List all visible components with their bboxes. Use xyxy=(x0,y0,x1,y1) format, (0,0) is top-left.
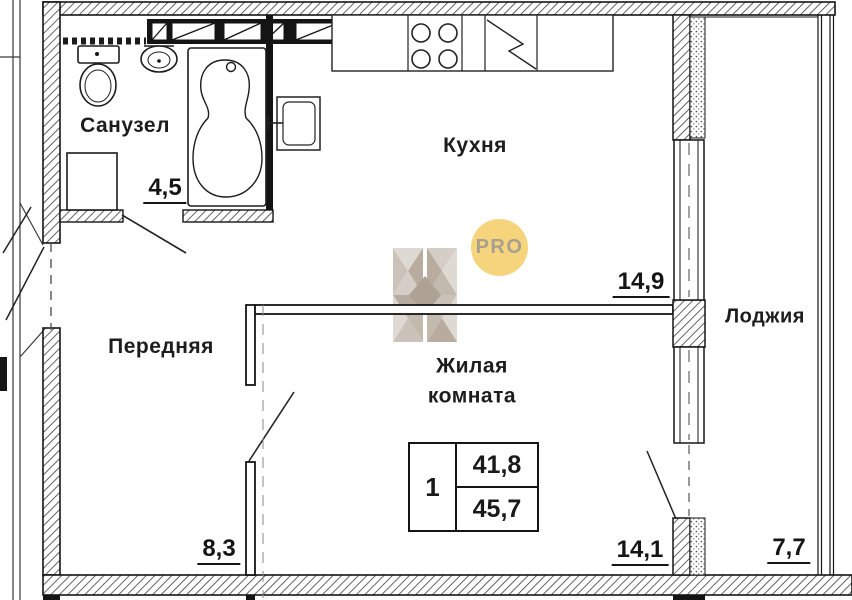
apartment-info-table: 1 41,8 45,7 xyxy=(408,442,539,532)
toilet-icon xyxy=(78,46,119,106)
watermark-h-logo xyxy=(393,248,457,342)
room-area-kitchen: 14,9 xyxy=(613,270,670,298)
area-value-bottom: 45,7 xyxy=(457,488,537,530)
washing-machine-icon xyxy=(67,153,117,210)
loggia-glazing xyxy=(705,15,834,575)
bathroom-walls xyxy=(60,210,273,222)
kitchen-sink-icon xyxy=(268,97,320,150)
ventilation-shaft xyxy=(147,19,345,44)
bathroom-door-swing xyxy=(122,215,186,253)
room-area-hall: 8,3 xyxy=(197,537,240,565)
room-label-bathroom: Санузел xyxy=(80,114,170,138)
room-area-bathroom: 4,5 xyxy=(143,176,186,204)
room-area-loggia: 7,7 xyxy=(767,536,810,564)
room-area-living: 14,1 xyxy=(612,538,669,566)
bathtub-icon xyxy=(188,48,266,206)
bathroom-kitchen-wall xyxy=(266,15,273,222)
room-label-kitchen: Кухня xyxy=(443,134,507,158)
watermark-pro-badge: PRO xyxy=(471,219,528,276)
adjacent-structure-lines xyxy=(0,0,43,600)
room-label-living: Жилая комната xyxy=(406,352,538,413)
kitchen-counter xyxy=(332,15,613,71)
room-label-hall: Передняя xyxy=(108,335,214,359)
area-value-top: 41,8 xyxy=(457,444,537,488)
living-door-swing xyxy=(249,392,294,461)
living-window xyxy=(674,347,704,443)
rooms-count: 1 xyxy=(410,444,457,530)
floor-plan: PRO Санузел 4,5 Кухня 14,9 Передняя 8,3 … xyxy=(0,0,852,600)
sink-icon xyxy=(141,46,177,72)
hall-living-partition xyxy=(246,305,673,575)
wall-stub xyxy=(0,357,7,391)
room-label-loggia: Лоджия xyxy=(725,306,805,329)
balcony-door xyxy=(647,445,689,519)
kitchen-window xyxy=(674,140,704,300)
